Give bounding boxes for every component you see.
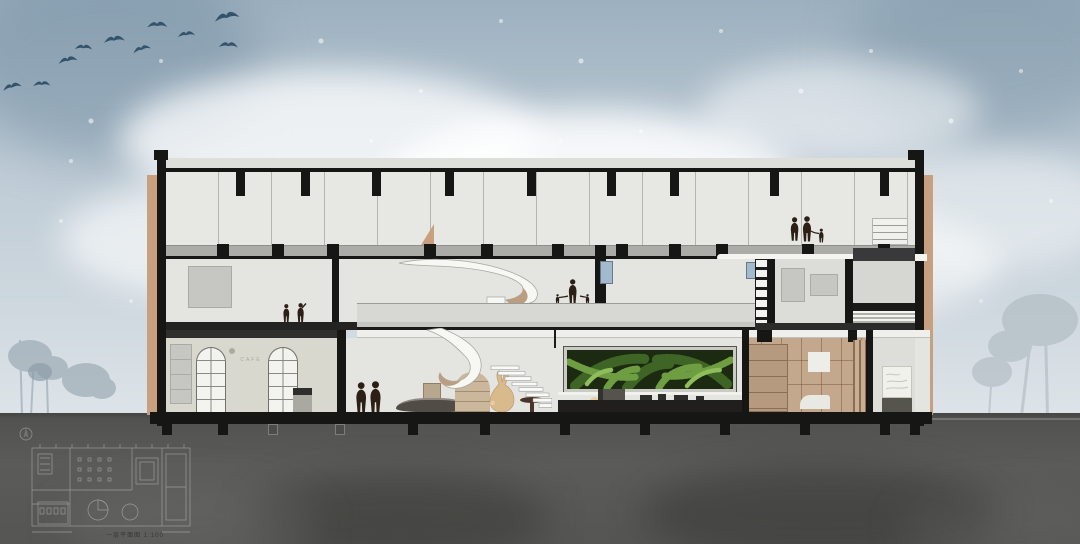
bed-base: [882, 398, 912, 412]
mezz-slab-right: [853, 303, 915, 311]
column-2f-right2: [845, 259, 853, 330]
building-section: CAFE: [140, 148, 935, 444]
wood-column: [742, 330, 749, 412]
column-1f: [337, 330, 346, 412]
window-2f: [600, 261, 613, 284]
ladder: [755, 259, 768, 332]
ferns: [567, 350, 733, 389]
curved-bench: [800, 395, 830, 409]
trees-left: [0, 328, 150, 418]
base-slab: [150, 412, 932, 424]
snow-speckles: [0, 0, 2, 2]
green-wall-frame: [564, 347, 736, 392]
wall-logo: [229, 348, 235, 354]
north-arrow-icon: [20, 428, 32, 441]
architectural-section-scene: 一层平面图 1:100: [0, 0, 1080, 544]
people-pair-walking: [353, 381, 385, 414]
bed: [882, 366, 912, 398]
counter-base: [558, 400, 742, 412]
spiral-staircase-lower: [415, 328, 552, 412]
floor-plan-caption: 一层平面图 1:100: [75, 530, 195, 539]
dark-header-right: [853, 248, 915, 261]
storefront-side-panel: [170, 344, 192, 404]
spiral-staircase-upper: [395, 253, 548, 307]
wood-column: [866, 330, 873, 412]
cladding-left: [147, 175, 157, 415]
arched-door: [196, 347, 226, 412]
roof-slab: [157, 158, 924, 168]
kiosk: [293, 388, 312, 412]
wood-white-slab: [808, 352, 830, 372]
stair-rail-3f: [872, 218, 908, 245]
gallery-parapet: [357, 303, 755, 330]
family-group-2f: [554, 279, 596, 305]
people-pair-2f: [280, 302, 310, 323]
green-wall-edge: [554, 330, 556, 348]
column-left: [157, 153, 166, 426]
trees-right: [940, 268, 1080, 418]
storefront-header: [166, 330, 337, 338]
people-group-3f: [785, 214, 833, 244]
birds-flock-icon: [0, 5, 260, 105]
wood-shelf-unit: [748, 344, 788, 412]
column-2f-right: [768, 259, 775, 330]
column-2f: [332, 259, 339, 330]
wall-panel-2f: [188, 266, 232, 308]
open-door: [421, 224, 434, 245]
ceiling-block: [757, 330, 772, 342]
wall-sign: CAFE: [236, 357, 266, 363]
cloud: [700, 60, 980, 160]
